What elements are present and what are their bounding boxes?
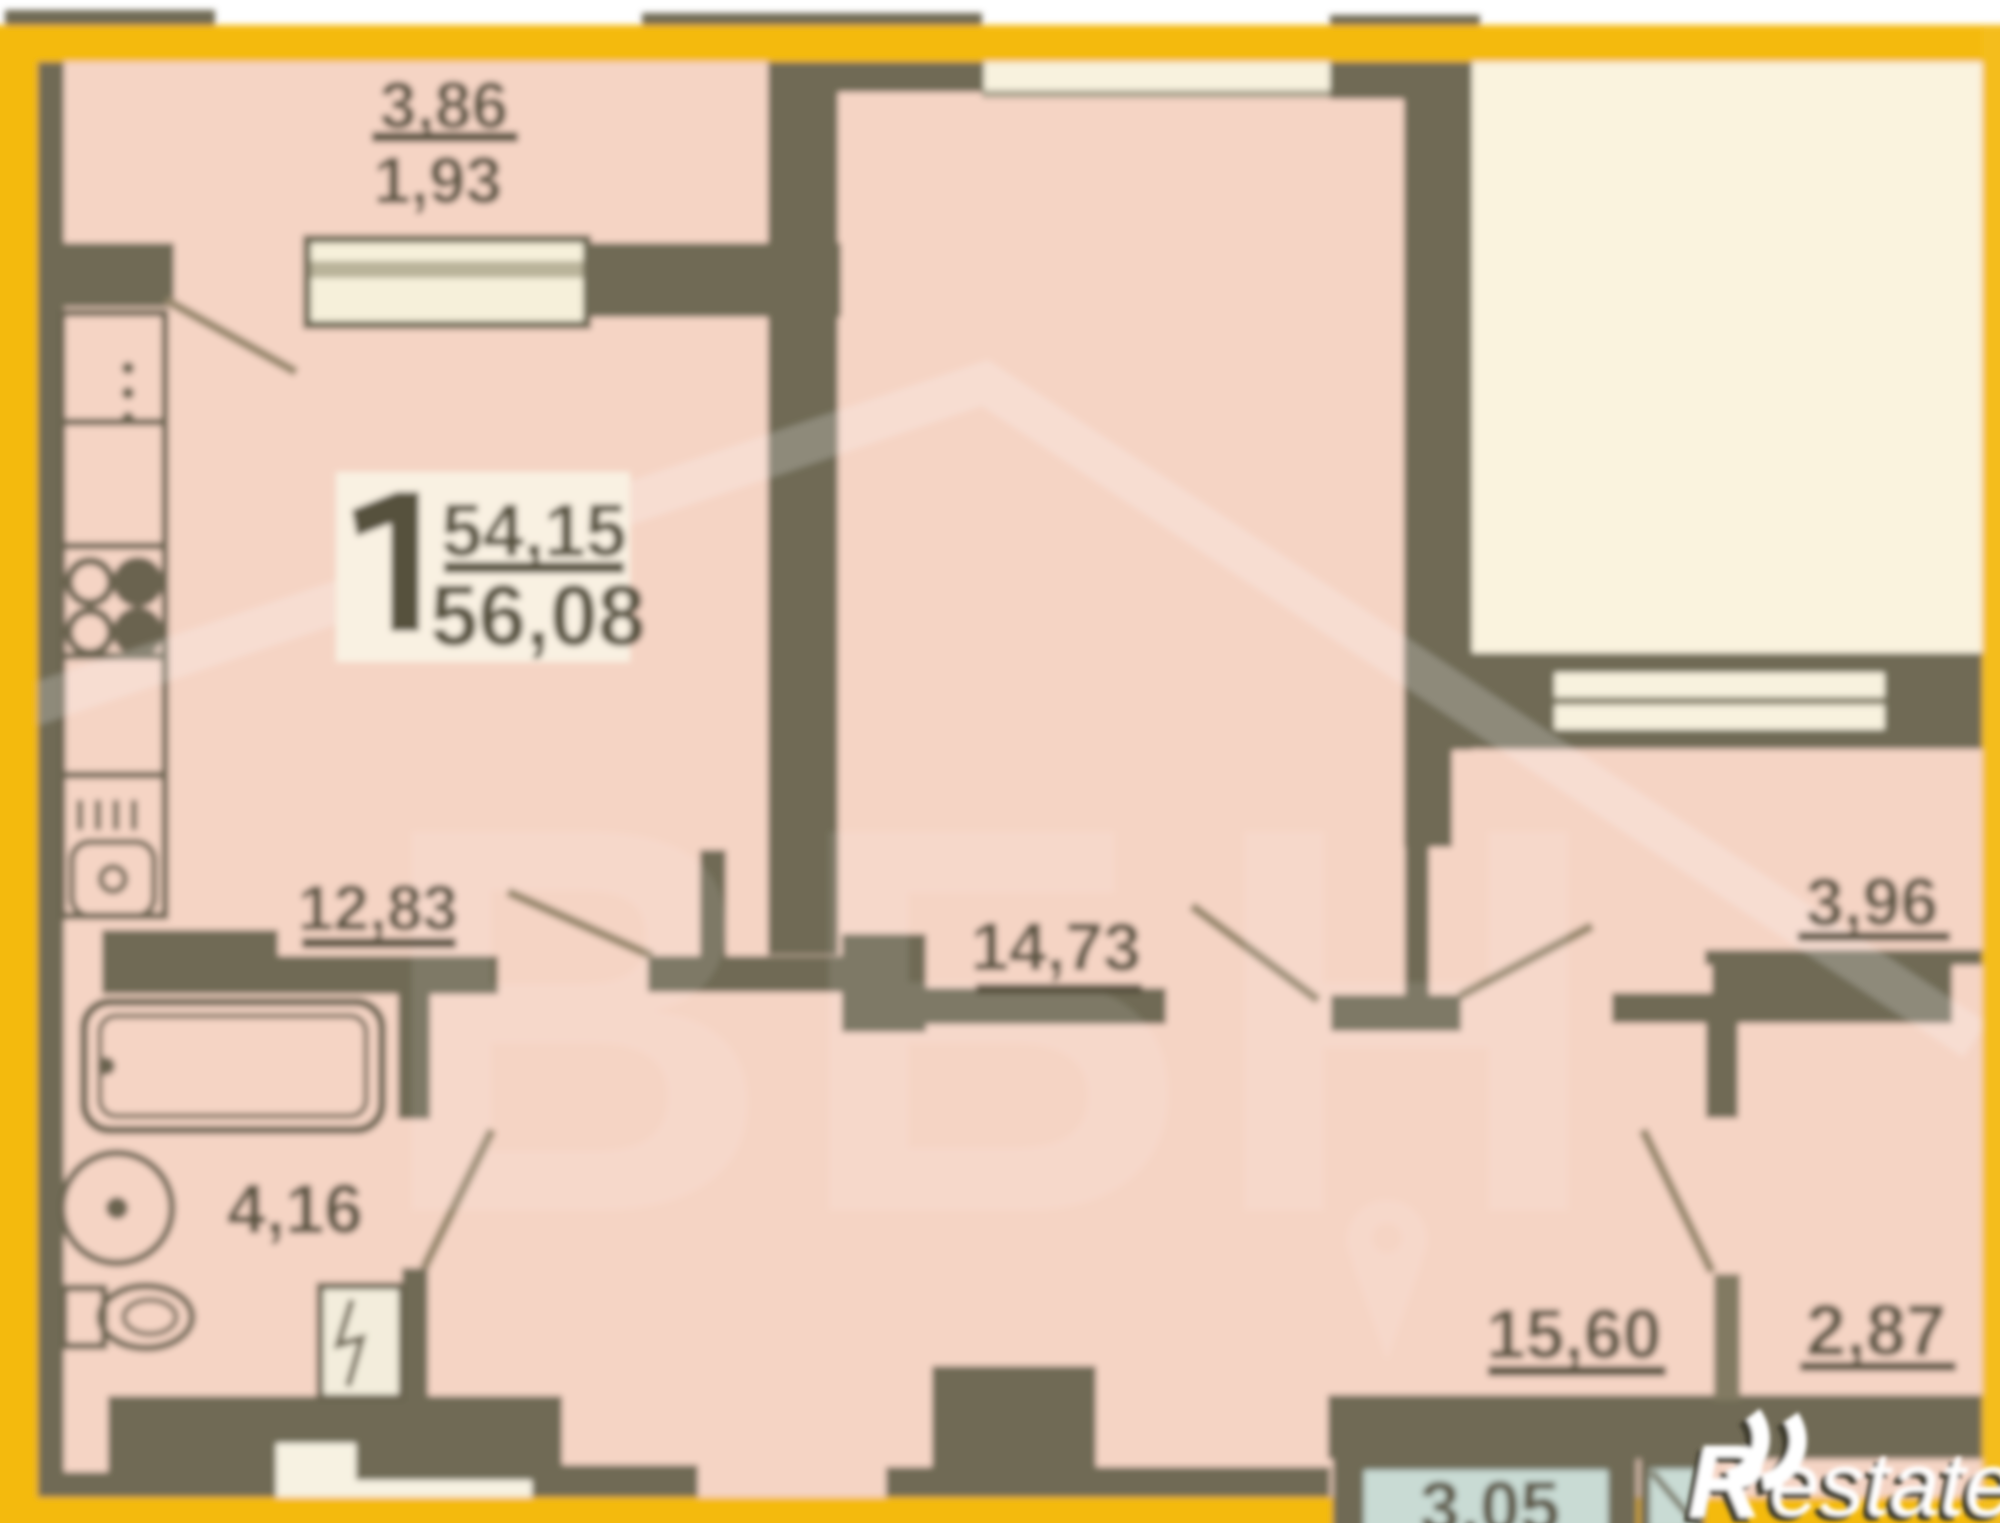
svg-text:3,96: 3,96: [1806, 864, 1938, 940]
svg-text:ВБН: ВБН: [375, 712, 1625, 1327]
svg-text:15,60: 15,60: [1486, 1295, 1661, 1373]
svg-text:12,83: 12,83: [298, 872, 458, 944]
svg-text:2,87: 2,87: [1806, 1291, 1946, 1371]
svg-text:1,93: 1,93: [374, 143, 502, 217]
svg-text:14,73: 14,73: [971, 909, 1141, 985]
svg-text:3,05: 3,05: [1420, 1468, 1560, 1523]
svg-text:54,15: 54,15: [441, 489, 626, 572]
svg-text:3,86: 3,86: [380, 68, 508, 142]
svg-text:56,08: 56,08: [430, 568, 645, 664]
svg-text:4,16: 4,16: [227, 1170, 363, 1248]
